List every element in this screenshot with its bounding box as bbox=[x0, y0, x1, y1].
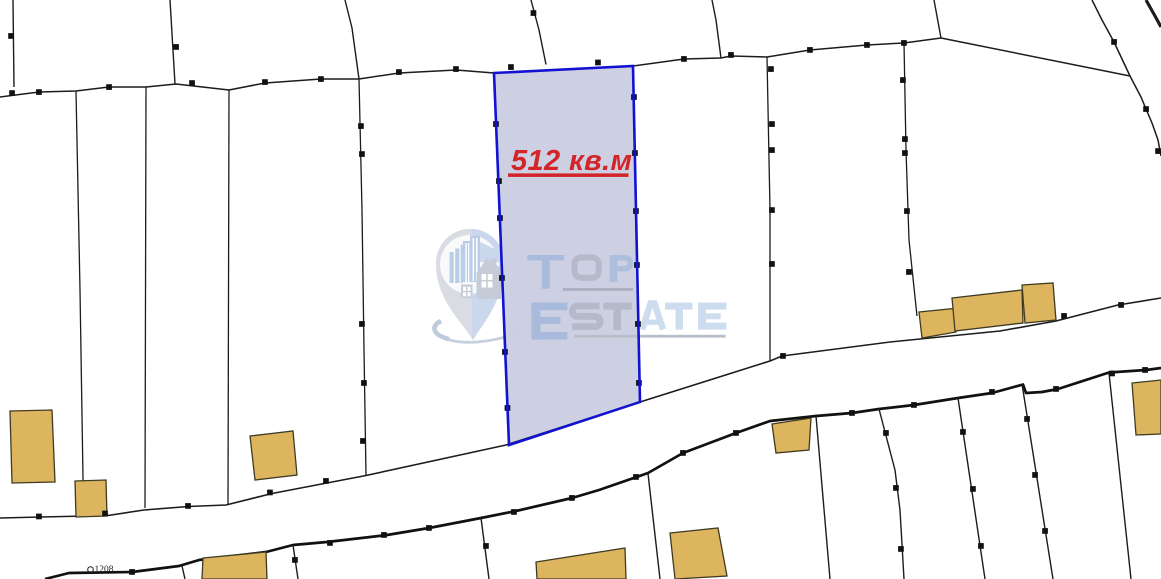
svg-text:512 кв.м: 512 кв.м bbox=[511, 145, 632, 177]
svg-text:1208: 1208 bbox=[95, 565, 114, 575]
